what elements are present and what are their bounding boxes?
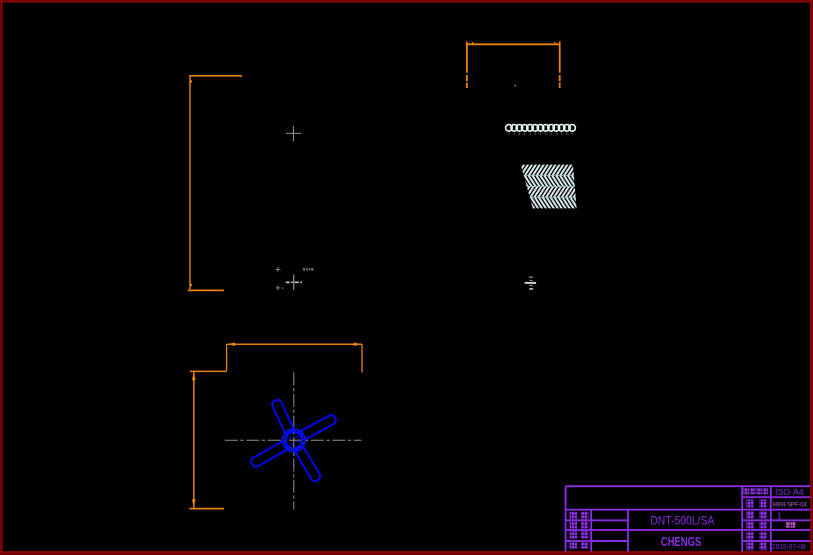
svg-text:1: 1 <box>777 511 782 521</box>
svg-text:ISO-A4: ISO-A4 <box>775 488 804 497</box>
svg-text:CHENGS: CHENGS <box>661 534 702 549</box>
svg-text:DNT-500L/SA: DNT-500L/SA <box>650 514 714 528</box>
svg-text:9904-SPF-04: 9904-SPF-04 <box>773 501 807 508</box>
svg-text:2015-07-08: 2015-07-08 <box>772 542 806 551</box>
